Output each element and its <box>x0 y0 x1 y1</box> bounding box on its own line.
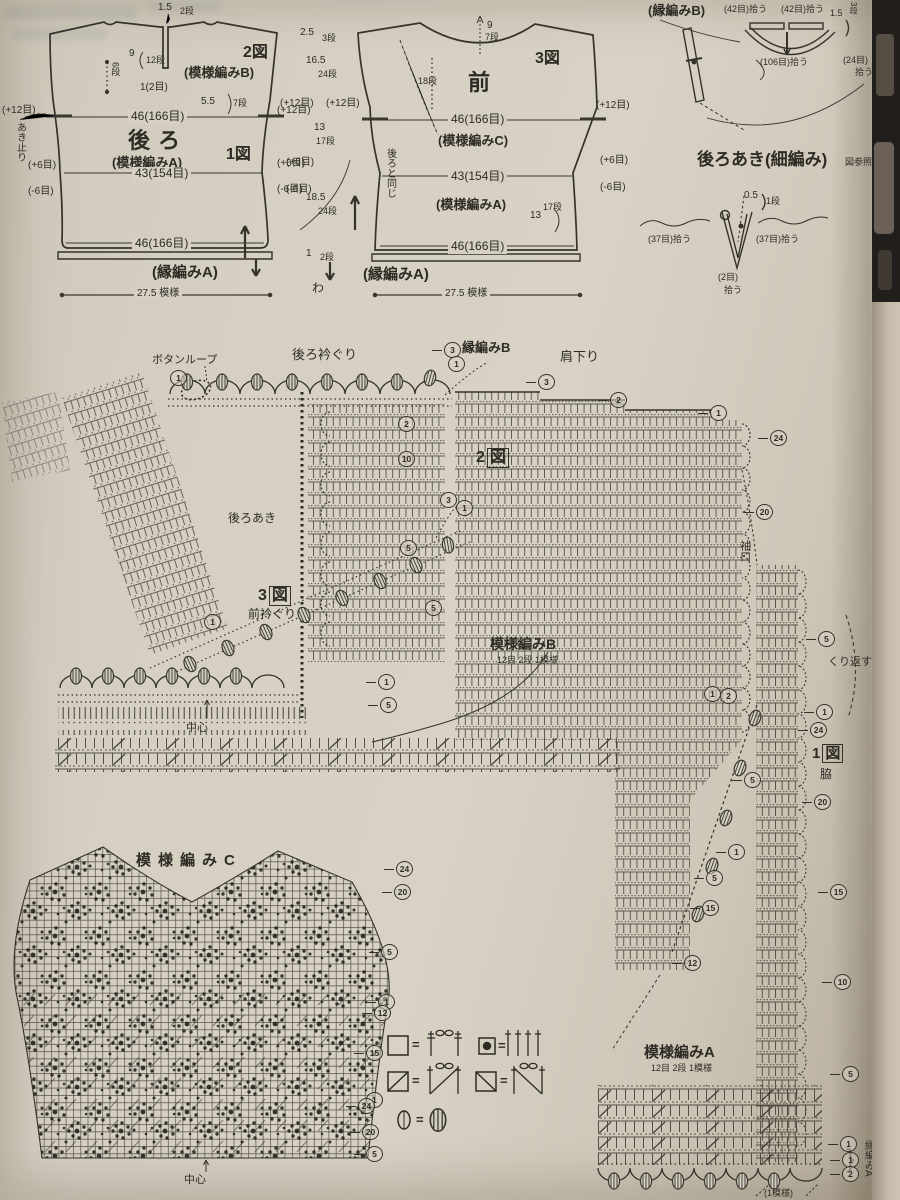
row-number: 20 <box>814 794 831 810</box>
back-fig2-label: 2図 <box>243 44 268 62</box>
back-plus12-left: (+12目) <box>2 105 36 117</box>
pattern-c-center: 中心 <box>184 1174 206 1187</box>
back-plus6-left: (+6目) <box>28 160 56 172</box>
chart-back-neck: 後ろ衿ぐり <box>292 348 357 363</box>
back-6rows: 6段 <box>110 62 120 76</box>
marker-dash <box>818 892 828 893</box>
pattern-c-title: 模様編みC <box>136 852 242 869</box>
row-number: 10 <box>834 974 851 990</box>
marker-dash <box>694 878 704 879</box>
opening-2st-b: 拾う <box>724 285 742 295</box>
marker-dash <box>672 963 682 964</box>
chart-shoulder: 肩下り <box>560 350 599 365</box>
row-number: 1 <box>378 674 395 690</box>
row-marker: 10 <box>398 451 415 467</box>
row-marker: 5 <box>369 944 398 960</box>
chart-sleeve-opening: 袖口 <box>738 540 751 562</box>
row-number: 5 <box>842 1066 859 1082</box>
front-plus6-right: (+6目) <box>600 155 628 167</box>
fig1-number: 1 <box>812 745 820 762</box>
row-marker: 15 <box>818 884 847 900</box>
row-marker: 24 <box>798 722 827 738</box>
chart-front-neck: 前衿ぐり <box>248 608 296 622</box>
back-notch-width: 1.5 <box>158 2 172 14</box>
row-number: 15 <box>830 884 847 900</box>
chart-fig2-label: 2図 <box>476 448 509 468</box>
row-number: 2 <box>398 416 415 432</box>
row-number: 24 <box>810 722 827 738</box>
row-number: 24 <box>396 861 413 877</box>
marker-dash <box>822 982 832 983</box>
row-number: 10 <box>398 451 415 467</box>
row-number: 20 <box>756 504 773 520</box>
row-number: 2 <box>720 688 737 704</box>
row-marker: 20 <box>350 1124 379 1140</box>
back-width-mid: 43(154目) <box>132 167 191 181</box>
chart-pattern-b-sub: 12目 2段 1模様 <box>497 655 558 665</box>
marker-dash <box>366 1002 376 1003</box>
row-marker: 24 <box>758 430 787 446</box>
row-marker: 3 <box>440 492 457 508</box>
row-marker: 20 <box>802 794 831 810</box>
row-marker: 5 <box>425 600 442 616</box>
photo-fragment <box>876 34 894 96</box>
cross-left-symbol-icon <box>476 1072 496 1091</box>
front-same-as-back: 後ろと同じ <box>384 148 396 198</box>
fig3-box: 図 <box>269 586 291 606</box>
side-strip-chart <box>742 470 856 1162</box>
row-marker: 5 <box>830 1066 859 1082</box>
pickup-24b: 拾う <box>855 67 873 77</box>
row-number: 5 <box>818 631 835 647</box>
back-7rows: 7段 <box>233 98 247 108</box>
front-minus6-right: (-6目) <box>600 182 626 194</box>
marker-dash <box>690 908 700 909</box>
row-marker: 10 <box>822 974 851 990</box>
chart-pattern-b: 模様編みB <box>490 636 556 652</box>
pickup-106: (106目)拾う <box>760 57 808 67</box>
front-motif-count: 27.5 模様 <box>442 288 490 300</box>
marker-dash <box>368 705 378 706</box>
row-marker: 5 <box>806 631 835 647</box>
mid-plus6: (+6目) <box>286 157 314 169</box>
row-marker: 2 <box>598 392 627 408</box>
front-width-top: 46(166目) <box>448 113 507 127</box>
puff-symbol-icon <box>398 1111 410 1129</box>
side-waki: 脇 <box>820 768 832 782</box>
fig2-number: 2 <box>476 449 485 466</box>
row-number: 3 <box>440 492 457 508</box>
marker-dash <box>830 1174 840 1175</box>
row-marker: 1 <box>704 686 721 702</box>
front-fig3-label: 3図 <box>535 50 560 68</box>
back-title: 後ろ <box>128 128 188 153</box>
marker-dash <box>698 413 708 414</box>
row-marker: 1 <box>828 1136 857 1152</box>
row-number: 20 <box>362 1124 379 1140</box>
mid-24rows: 24段 <box>318 69 337 79</box>
cross-right-meaning-icon <box>427 1063 461 1094</box>
back-pattern-b: (模様編みB) <box>184 66 254 81</box>
row-number: 12 <box>684 955 701 971</box>
row-marker: 12 <box>672 955 701 971</box>
marker-dash <box>526 382 536 383</box>
pattern-a-title: 模様編みA <box>644 1044 715 1061</box>
pickup-42-left: (42目)拾う <box>724 4 767 14</box>
row-marker: 5 <box>732 772 761 788</box>
marker-dash <box>354 1154 364 1155</box>
front-plus12-right: (+12目) <box>596 100 630 112</box>
row-marker: 1 <box>456 500 473 516</box>
marker-dash <box>806 639 816 640</box>
front-17rows: 17段 <box>543 202 562 212</box>
row-number: 1 <box>204 614 221 630</box>
chart-edge-b: 縁編みB <box>462 341 510 356</box>
puff-meaning-icon <box>430 1109 445 1131</box>
back-neck-rows: 12段 <box>146 55 165 65</box>
mid-3rows: 3段 <box>322 33 336 43</box>
row-marker: 20 <box>382 884 411 900</box>
front-width-mid: 43(154目) <box>448 170 507 184</box>
legend-eq5: = <box>416 1113 424 1128</box>
marker-dash <box>732 780 742 781</box>
page-edge <box>872 302 900 1200</box>
row-number: 2 <box>610 392 627 408</box>
pickup-24: (24目) <box>843 55 868 65</box>
marker-dash <box>598 400 608 401</box>
mid-1: 1 <box>306 248 312 260</box>
marker-dash <box>350 1132 360 1133</box>
row-marker: 12 <box>362 1005 391 1021</box>
open-mesh-meaning-icon <box>427 1030 462 1056</box>
row-marker: 3 <box>526 374 555 390</box>
front-13: 13 <box>530 210 541 222</box>
row-marker: 2 <box>398 416 415 432</box>
fig1-box: 図 <box>822 744 843 763</box>
marker-dash <box>346 1106 356 1107</box>
mid-2-5: 2.5 <box>300 27 314 39</box>
row-marker: 1 <box>366 674 395 690</box>
row-marker: 1 <box>698 405 727 421</box>
mid-18-5: 18.5 <box>306 192 325 204</box>
front-title: 前 <box>468 70 490 95</box>
back-minus6-left: (-6目) <box>28 186 54 198</box>
front-pattern-c: (模様編みC) <box>438 134 508 149</box>
marker-dash <box>384 869 394 870</box>
row-marker: 5 <box>694 870 723 886</box>
marker-dash <box>432 350 442 351</box>
row-number: 1 <box>728 844 745 860</box>
marker-dash <box>354 1053 364 1054</box>
back-edge-a: (縁編みA) <box>152 264 218 281</box>
marker-dash <box>798 730 808 731</box>
row-number: 3 <box>538 374 555 390</box>
fig2-box: 図 <box>487 448 509 468</box>
back-5-5: 5.5 <box>201 96 215 108</box>
adjacent-page-photo-edge <box>872 0 900 302</box>
legend-eq4: = <box>500 1074 508 1089</box>
marker-dash <box>802 802 812 803</box>
photo-fragment <box>874 142 894 234</box>
row-marker: 1 <box>448 356 465 372</box>
back-opening-stop: あき止り <box>14 122 26 162</box>
row-number: 1 <box>710 405 727 421</box>
front-18rows: 18段 <box>418 76 437 86</box>
pattern-a-sub: 12目 2段 1模様 <box>651 1063 712 1073</box>
row-marker: 15 <box>354 1045 383 1061</box>
chart-center: 中心 <box>186 722 208 735</box>
row-number: 12 <box>374 1005 391 1021</box>
pickup-1-5: 1.5 <box>830 8 843 18</box>
marker-dash <box>758 438 768 439</box>
back-notch-rows: 2段 <box>180 6 194 16</box>
row-marker: 24 <box>346 1098 375 1114</box>
marker-dash <box>804 712 814 713</box>
pickup-3rows: 3段 <box>849 2 858 14</box>
opening-2st: (2目) <box>718 272 738 282</box>
row-marker: 2 <box>830 1166 859 1182</box>
row-number: 5 <box>380 697 397 713</box>
row-marker: 1 <box>804 704 833 720</box>
pattern-a-chart <box>598 1085 822 1196</box>
marker-dash <box>830 1160 840 1161</box>
marker-dash <box>828 1144 838 1145</box>
scanned-pattern-page: 1.5 2段 9 12段 6段 1(2目) 2図 (模様編みB) 5.5 7段 … <box>0 0 900 1200</box>
front-pattern-a: (模様編みA) <box>436 198 506 213</box>
cross-right-symbol-icon <box>388 1072 408 1091</box>
row-number: 24 <box>770 430 787 446</box>
row-number: 5 <box>381 944 398 960</box>
marker-dash <box>366 682 376 683</box>
mid-24rows-b: 24段 <box>318 206 337 216</box>
row-number: 1 <box>170 370 187 386</box>
row-number: 5 <box>744 772 761 788</box>
row-number: 20 <box>394 884 411 900</box>
opening-title: 後ろあき(細編み) <box>697 150 827 170</box>
front-neck9: 9 <box>487 20 493 32</box>
row-marker: 1 <box>204 614 221 630</box>
open-mesh-symbol-icon <box>388 1036 408 1055</box>
side-repeat: くり返す <box>828 656 872 669</box>
opening-37-left: (37目)拾う <box>648 234 691 244</box>
legend-eq1: = <box>412 1038 420 1053</box>
chart-fig3-label: 3図 <box>258 586 291 606</box>
mid-plus12-a: (+12目) <box>280 98 314 110</box>
mid-13: 13 <box>314 122 325 134</box>
row-number: 1 <box>704 686 721 702</box>
photo-fragment <box>878 250 892 290</box>
marker-dash <box>744 512 754 513</box>
row-marker: 1 <box>716 844 745 860</box>
pattern-a-one-motif: (1模様) <box>764 1188 793 1198</box>
row-marker: 20 <box>744 504 773 520</box>
chart-back-opening: 後ろあき <box>228 512 276 526</box>
back-width-top: 46(166目) <box>128 110 187 124</box>
chart-button-loop: ボタンループ <box>152 354 217 367</box>
row-number: 24 <box>358 1098 375 1114</box>
opening-37-right: (37目)拾う <box>756 234 799 244</box>
opening-0-5: 0.5 <box>744 190 758 202</box>
back-fig1-label: 1図 <box>226 146 251 164</box>
row-number: 1 <box>816 704 833 720</box>
row-number: 5 <box>366 1146 383 1162</box>
cross-left-meaning-icon <box>511 1063 545 1094</box>
row-number: 2 <box>842 1166 859 1182</box>
back-opening-diagram <box>640 194 828 268</box>
row-marker: 1 <box>170 370 187 386</box>
marker-dash <box>382 892 392 893</box>
legend-eq3: = <box>412 1074 420 1089</box>
back-neck-depth: 9 <box>129 48 135 60</box>
back-1-2st: 1(2目) <box>140 82 168 94</box>
pickup-edge-b: (縁編みB) <box>648 4 705 19</box>
mid-17rows: 17段 <box>316 136 335 146</box>
pickup-42-right: (42目)拾う <box>781 4 824 14</box>
marker-dash <box>716 852 726 853</box>
back-width-bottom: 46(166目) <box>132 237 191 251</box>
row-number: 15 <box>702 900 719 916</box>
opening-1row: 1段 <box>766 196 780 206</box>
row-marker: 24 <box>384 861 413 877</box>
legend-eq2: = <box>498 1039 506 1054</box>
opening-ref: 図参照 <box>845 157 872 167</box>
side-fig1-label: 1図 <box>812 744 843 763</box>
pattern-c-chart <box>0 840 400 1172</box>
mid-2rows: 2段 <box>320 252 334 262</box>
row-marker: 5 <box>368 697 397 713</box>
neck-pickup-diagram <box>660 20 864 130</box>
mid-wa: わ <box>312 282 324 296</box>
row-marker: 15 <box>690 900 719 916</box>
row-number: 15 <box>366 1045 383 1061</box>
front-edge-a: (縁編みA) <box>363 266 429 283</box>
back-motif-count: 27.5 模様 <box>134 288 182 300</box>
row-number: 1 <box>840 1136 857 1152</box>
row-marker: 2 <box>720 688 737 704</box>
row-number: 5 <box>400 540 417 556</box>
marker-dash <box>830 1074 840 1075</box>
front-neck-rows: 7段 <box>485 32 499 42</box>
row-number: 5 <box>706 870 723 886</box>
row-marker: 5 <box>354 1146 383 1162</box>
mid-16-5: 16.5 <box>306 55 325 67</box>
filled-block-meaning-icon <box>505 1030 541 1056</box>
row-number: 1 <box>456 500 473 516</box>
marker-dash <box>369 952 379 953</box>
fig3-number: 3 <box>258 587 267 604</box>
row-marker: 5 <box>400 540 417 556</box>
marker-dash <box>362 1013 372 1014</box>
mid-plus12-b: (+12目) <box>326 98 360 110</box>
row-number: 5 <box>425 600 442 616</box>
front-width-bottom: 46(166目) <box>448 240 507 254</box>
row-number: 1 <box>448 356 465 372</box>
